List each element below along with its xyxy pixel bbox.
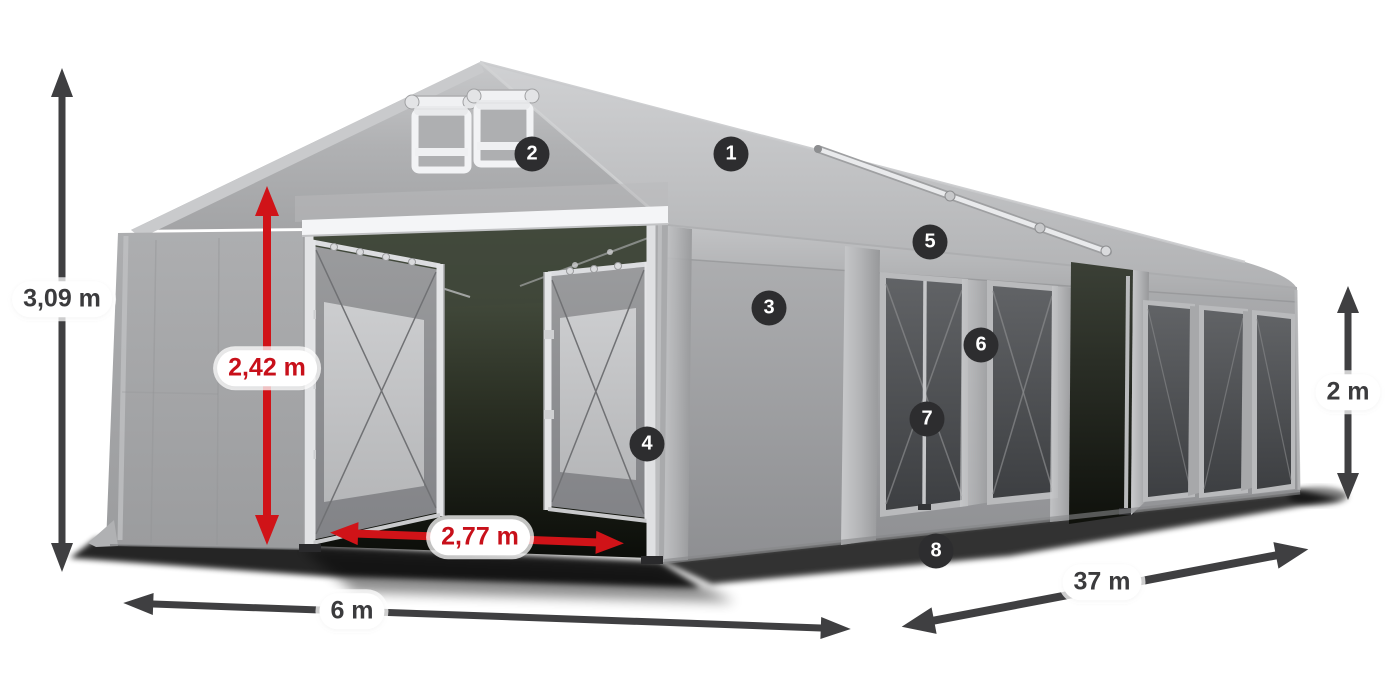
callout-marker-5[interactable]: 5: [913, 225, 948, 260]
tent-dimension-diagram: 3,09 m 2,42 m 2,77 m 6 m 37 m 2 m 1 2 3 …: [0, 0, 1400, 700]
callout-marker-3[interactable]: 3: [752, 291, 787, 326]
entrance-door-right: [544, 262, 648, 522]
callout-marker-8[interactable]: 8: [919, 534, 954, 569]
side-window: [1252, 310, 1295, 494]
side-window: [880, 272, 968, 517]
callout-marker-7[interactable]: 7: [910, 402, 945, 437]
callout-marker-2[interactable]: 2: [515, 137, 550, 172]
dimension-label-side-height: 2 m: [1315, 374, 1380, 410]
side-window: [987, 280, 1058, 505]
side-window: [1143, 300, 1195, 502]
callout-marker-6[interactable]: 6: [964, 328, 999, 363]
tent-illustration: [0, 0, 1400, 700]
dimension-label-entrance-width: 2,77 m: [430, 519, 530, 555]
entrance-door-left: [306, 240, 444, 544]
dimension-label-total-height: 3,09 m: [12, 281, 112, 317]
arrow-tent-width: [123, 592, 851, 640]
callout-marker-1[interactable]: 1: [714, 137, 749, 172]
side-window: [1199, 305, 1248, 498]
dimension-label-tent-width: 6 m: [319, 593, 384, 629]
side-open-section: [1069, 262, 1134, 524]
arrow-total-height: [51, 68, 73, 572]
dimension-label-tent-length: 37 m: [1063, 564, 1142, 600]
entrance: [299, 206, 668, 564]
callout-marker-4[interactable]: 4: [630, 427, 665, 462]
roof-vent-left: [405, 95, 477, 170]
dimension-label-entrance-height: 2,42 m: [217, 350, 317, 386]
